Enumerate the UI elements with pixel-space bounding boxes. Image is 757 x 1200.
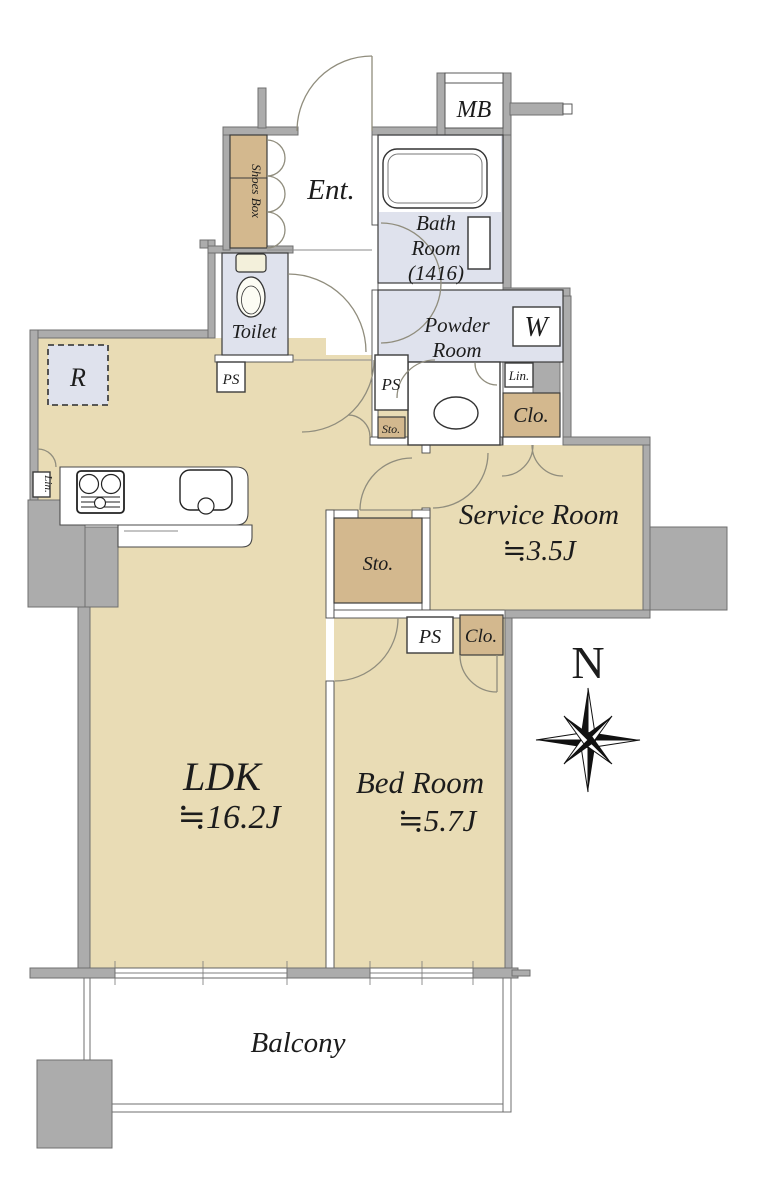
compass: N [536,637,640,792]
wall-bottom-b [287,968,370,978]
wall-shoesbox-west [223,127,230,250]
bath-room-label-1: Bath [416,211,456,235]
linen-label-kitchen: Lin. [42,474,54,492]
shoes-box-label: Shoes Box [249,164,264,218]
shoes-box-door-arcs [267,140,285,248]
wall-bottom-a [30,968,115,978]
wall-ne-stub-cap [563,104,572,114]
wall-top-left [30,330,215,338]
washer-label: W [524,312,550,343]
toilet-bottom-wall [215,355,293,362]
balcony-structure [37,978,511,1148]
mb-top-band [445,73,503,83]
entrance-label: Ent. [306,174,355,206]
floor-plan-canvas: N LDK ≒16.2J Bed Room ≒5.7J Service Room… [0,0,757,1200]
powder-room-label-1: Powder [423,313,490,337]
wash-basin [434,397,478,429]
floor-plan: N LDK ≒16.2J Bed Room ≒5.7J Service Room… [0,0,757,1200]
powder-room-label-2: Room [432,338,482,362]
ldk-size-label: ≒16.2J [177,799,282,836]
wall-duct-chunk [533,358,560,393]
bath-counter [468,217,490,269]
closet-label-bedroom: Clo. [465,626,497,647]
bedroom-label: Bed Room [356,765,484,800]
outside-pillar-east [650,527,727,610]
balcony-label: Balcony [250,1027,345,1059]
ent-bath-wall [372,135,378,225]
entrance-door-arc [297,56,372,131]
balcony-railing [112,1104,503,1112]
balcony-pillar [37,1060,112,1148]
ps-label-toilet: PS [222,372,240,388]
service-room-size-label: ≒3.5J [502,535,577,567]
compass-north-label: N [571,637,604,688]
balcony-left-line [84,978,90,1060]
wall-bedroom-east [505,618,512,968]
storage-top-wall-right [412,510,430,518]
toilet-bowl [237,277,265,317]
wall-ne-stub [510,103,563,115]
wall-service-northeast [563,437,650,445]
service-room-label: Service Room [459,499,619,531]
wall-bottom-c [473,968,518,978]
service-west-wall-bottom [422,508,430,610]
ps-label-bedroom: PS [418,626,441,648]
closet-label-service: Clo. [513,403,549,427]
wall-west-lower [78,607,90,968]
stove-knob [95,498,106,509]
meter-box-label: MB [456,97,492,123]
wall-ent-stub [258,88,266,128]
bath-room-label-2: Room [411,236,461,260]
wall-service-south [505,610,650,618]
refrigerator-label: R [69,363,86,392]
storage-label-large: Sto. [363,553,394,575]
kitchen-counter-lip [118,525,252,547]
toilet-tank [236,254,266,272]
ldk-label: LDK [182,754,263,799]
wall-powder-east [563,296,571,437]
wall-mb-west [437,73,445,135]
bedroom-size-label: ≒5.7J [398,803,478,838]
ps-label-powder: PS [381,375,401,394]
wall-service-east [643,445,650,618]
toilet-label: Toilet [232,321,277,343]
wall-bath-east [503,135,511,288]
bathtub [383,149,487,208]
bath-room-label-3: (1416) [408,261,464,285]
hall-column-floor [326,443,433,518]
balcony-right-line [503,978,511,1112]
sink-faucet [198,498,214,514]
ldk-bedroom-wall-upper [326,510,334,618]
storage-label-small: Sto. [382,422,400,436]
ldk-bedroom-wall-lower [326,681,334,968]
linen-label: Lin. [508,368,530,383]
wall-west-block-b [85,527,118,607]
wall-bottom-stub [512,970,530,976]
wall-toilet-west [208,240,215,338]
